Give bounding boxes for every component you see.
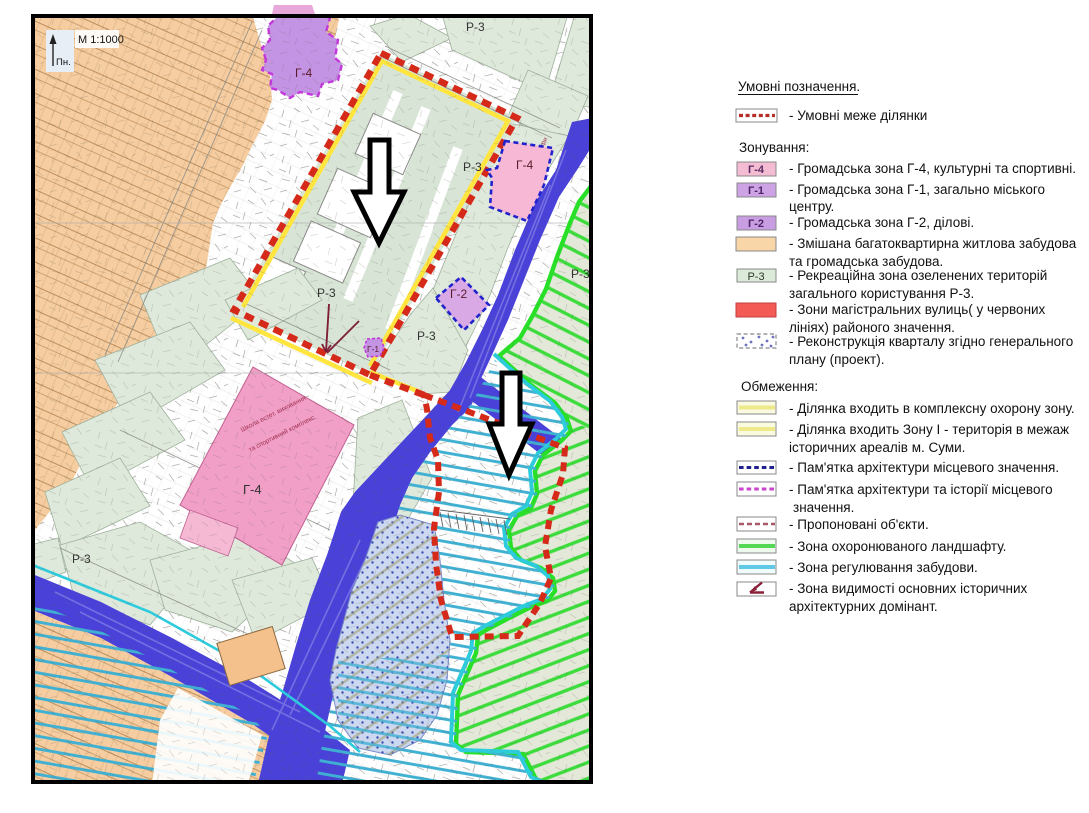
svg-text:- Рекреаційна зона озеленених: - Рекреаційна зона озеленених територій: [789, 268, 1047, 283]
svg-text:Р-3: Р-3: [72, 552, 91, 566]
svg-text:Умовні позначення.: Умовні позначення.: [738, 79, 860, 94]
svg-text:- Пам'ятка архітектури та істо: - Пам'ятка архітектури та історії місцев…: [789, 482, 1053, 497]
svg-text:Г-2: Г-2: [450, 287, 467, 301]
svg-text:Г-1: Г-1: [748, 185, 764, 197]
svg-text:плану (проект).: плану (проект).: [789, 352, 884, 367]
svg-text:- Реконструкція кварталу згідн: - Реконструкція кварталу згідно генераль…: [789, 334, 1073, 349]
svg-text:історичних ареалів м. Суми.: історичних ареалів м. Суми.: [789, 440, 965, 455]
svg-text:- Зона видимості основних істо: - Зона видимості основних історичних: [789, 581, 1027, 596]
svg-text:- Громадська зона Г-2, ділові.: - Громадська зона Г-2, ділові.: [789, 215, 974, 230]
svg-text:- Громадська зона Г-1, загальн: - Громадська зона Г-1, загально міського: [789, 182, 1045, 197]
svg-text:значення.: значення.: [793, 500, 854, 515]
svg-text:- Зона регулювання забудови.: - Зона регулювання забудови.: [789, 560, 978, 575]
svg-text:Г-2: Г-2: [748, 218, 764, 230]
svg-text:Р-3: Р-3: [571, 267, 590, 281]
svg-text:- Зони магістральних вулиць( у: - Зони магістральних вулиць( у червоних: [789, 302, 1046, 317]
svg-text:- Ділянка входить Зону І - те: - Ділянка входить Зону І - територія в м…: [789, 422, 1069, 437]
svg-text:архітектурних домінант.: архітектурних домінант.: [789, 599, 938, 614]
svg-text:- Умовні меже ділянки: - Умовні меже ділянки: [789, 108, 927, 123]
svg-text:Г-4: Г-4: [516, 158, 533, 172]
svg-text:- Зона охоронюваного ландшафту: - Зона охоронюваного ландшафту.: [789, 539, 1006, 554]
svg-text:загального користування Р-3.: загального користування Р-3.: [789, 286, 974, 301]
svg-text:Обмеження:: Обмеження:: [741, 379, 818, 394]
svg-text:Р-3: Р-3: [317, 286, 336, 300]
svg-text:та громадська забудова.: та громадська забудова.: [789, 254, 943, 269]
svg-text:- Громадська зона Г-4, культур: - Громадська зона Г-4, культурні та спор…: [789, 161, 1076, 176]
svg-text:Р-3: Р-3: [747, 271, 764, 283]
svg-text:М 1:1000: М 1:1000: [78, 34, 124, 46]
svg-text:- Змішана багатоквартирна житл: - Змішана багатоквартирна житлова забудо…: [789, 236, 1077, 251]
svg-text:центру.: центру.: [789, 199, 834, 214]
svg-text:Зонування:: Зонування:: [739, 140, 809, 155]
svg-text:Г-1: Г-1: [367, 344, 379, 354]
svg-text:Г-4: Г-4: [295, 66, 312, 80]
svg-text:- Пам'ятка архітектури місцево: - Пам'ятка архітектури місцевого значенн…: [789, 460, 1059, 475]
svg-text:лініях) районого значення.: лініях) районого значення.: [789, 320, 955, 335]
svg-text:Г-4: Г-4: [748, 164, 765, 176]
svg-text:Пн.: Пн.: [56, 57, 71, 68]
svg-text:Р-3: Р-3: [417, 329, 436, 343]
svg-text:- Пропоновані об'єкти.: - Пропоновані об'єкти.: [789, 517, 929, 532]
svg-text:- Ділянка входить в комплексну: - Ділянка входить в комплексну охорону з…: [789, 401, 1075, 416]
svg-text:Г-4: Г-4: [243, 482, 262, 497]
svg-text:Р-3: Р-3: [466, 20, 485, 34]
svg-text:Р-3: Р-3: [463, 160, 482, 174]
